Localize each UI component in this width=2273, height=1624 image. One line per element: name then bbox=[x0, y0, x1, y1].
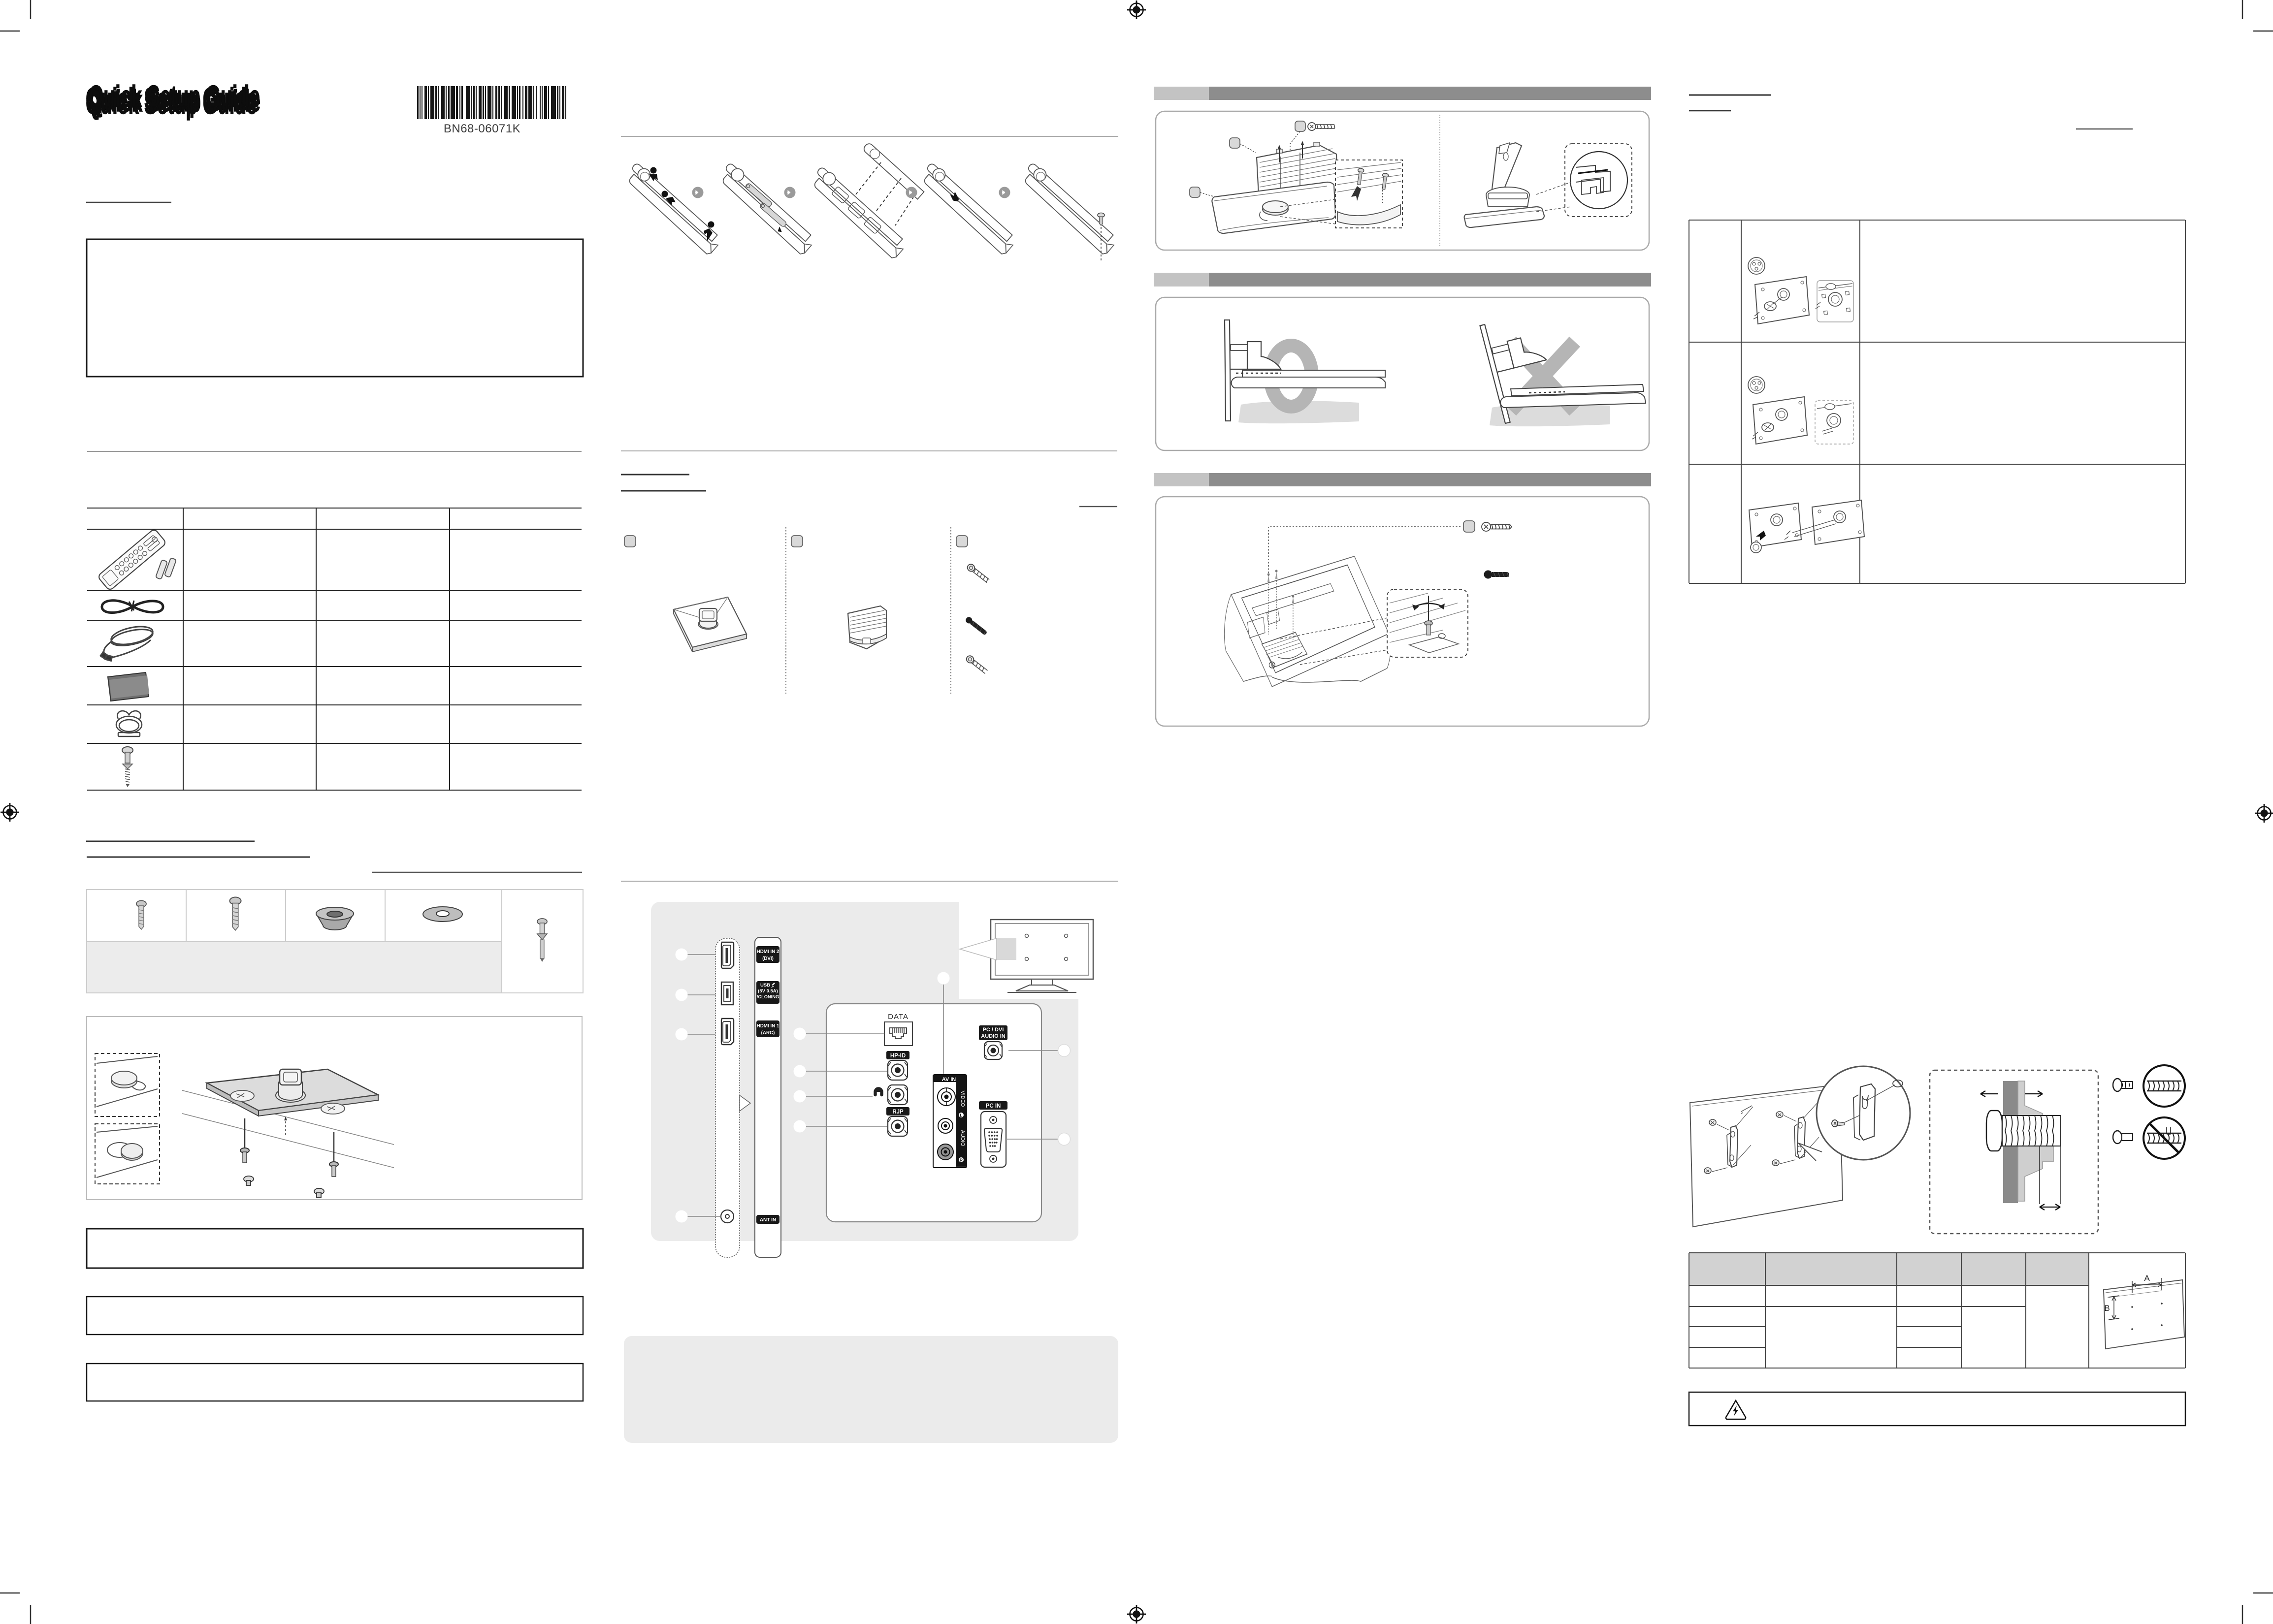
svg-text:HDMI IN 1: HDMI IN 1 bbox=[757, 1023, 779, 1029]
svg-text:USB: USB bbox=[760, 983, 770, 988]
svg-text:(DVI): (DVI) bbox=[762, 956, 774, 961]
svg-text:DATA: DATA bbox=[888, 1013, 909, 1021]
svg-text:VIDEO: VIDEO bbox=[960, 1091, 966, 1107]
svg-text:ANT IN: ANT IN bbox=[760, 1217, 776, 1223]
svg-text:BN68-06071K: BN68-06071K bbox=[444, 122, 520, 135]
svg-text:Quick Setup Guide: Quick Setup Guide bbox=[89, 80, 260, 114]
svg-text:AV IN: AV IN bbox=[942, 1077, 956, 1083]
svg-text:(5V 0.5A): (5V 0.5A) bbox=[758, 988, 778, 994]
svg-text:/CLONING: /CLONING bbox=[757, 994, 779, 999]
svg-text:AUDIO: AUDIO bbox=[960, 1130, 966, 1146]
svg-text:R: R bbox=[960, 1158, 963, 1163]
svg-text:A: A bbox=[2144, 1274, 2150, 1283]
svg-text:RJP: RJP bbox=[892, 1109, 904, 1115]
svg-text:PC IN: PC IN bbox=[986, 1103, 1001, 1109]
svg-text:L: L bbox=[960, 1113, 962, 1118]
svg-text:AUDIO IN: AUDIO IN bbox=[981, 1033, 1006, 1039]
svg-text:(ARC): (ARC) bbox=[761, 1030, 775, 1036]
svg-text:PC / DVI: PC / DVI bbox=[983, 1027, 1004, 1033]
svg-text:HDMI IN 2: HDMI IN 2 bbox=[757, 949, 779, 955]
svg-text:B: B bbox=[2104, 1304, 2110, 1313]
svg-text:HP-ID: HP-ID bbox=[890, 1053, 906, 1059]
